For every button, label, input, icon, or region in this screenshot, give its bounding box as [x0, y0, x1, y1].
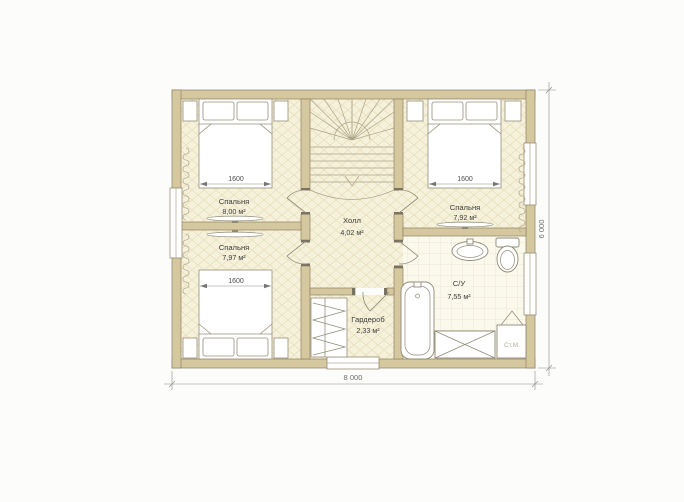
bed-width-bottom-left: 1600 [228, 278, 244, 285]
label-wardrobe-name: Гардероб [351, 315, 385, 324]
overall-width-label: 8 000 [343, 373, 362, 382]
label-hall-name: Холл [343, 216, 361, 225]
nightstand [274, 101, 288, 121]
window-right-top [524, 143, 536, 205]
bathtub [401, 282, 434, 359]
label-bedroom-top-right-name: Спальня [450, 203, 481, 212]
dimension-right: 6 000 [537, 82, 556, 376]
wall-stair-right [394, 99, 403, 190]
bed-width-top-left: 1600 [228, 176, 244, 183]
wardrobe-closet [311, 298, 347, 357]
nightstand [274, 338, 288, 358]
wall-lower-left [301, 266, 310, 359]
floor-plan-page: Ст.М. Спальня 8,00 м² 1600 Спальня 7,97 … [0, 0, 684, 502]
window-right-bottom [524, 253, 536, 315]
wall-stair-left [301, 99, 310, 190]
label-bedroom-top-left-area: 8,00 м² [222, 207, 246, 216]
bathroom-cabinet [435, 331, 495, 358]
wall-stub-left [301, 214, 310, 240]
label-bedroom-top-left-name: Спальня [219, 197, 250, 206]
bed-top-left [183, 99, 288, 188]
wall-right [526, 90, 535, 368]
overall-height-label: 6 000 [537, 219, 546, 238]
label-wardrobe-area: 2,33 м² [356, 326, 380, 335]
wall-divider-left-bedrooms [181, 222, 301, 230]
nightstand [505, 101, 521, 121]
wall-wardrobe-top [310, 288, 355, 295]
dimension-bottom: 8 000 [164, 371, 543, 390]
nightstand [407, 101, 423, 121]
bed-width-top-right: 1600 [457, 176, 473, 183]
window-left [170, 188, 182, 258]
label-hall-area: 4,02 м² [340, 228, 364, 237]
wall-top [172, 90, 535, 99]
label-bedroom-bottom-left-name: Спальня [219, 243, 250, 252]
floor-plan-drawing: Ст.М. Спальня 8,00 м² 1600 Спальня 7,97 … [0, 0, 684, 502]
washing-machine-label: Ст.М. [504, 342, 520, 349]
wall-divider-right [403, 228, 526, 236]
label-bedroom-top-right-area: 7,92 м² [453, 213, 477, 222]
label-bedroom-bottom-left-area: 7,97 м² [222, 253, 246, 262]
toilet [496, 238, 519, 272]
label-bathroom-area: 7,55 м² [447, 292, 471, 301]
floor-hall [301, 190, 403, 288]
window-bottom [327, 357, 379, 369]
nightstand [183, 101, 197, 121]
nightstand [183, 338, 197, 358]
wall-stub-right [394, 214, 403, 240]
wall-wardrobe-jamb [387, 288, 394, 295]
label-bathroom-name: С/У [453, 279, 466, 288]
